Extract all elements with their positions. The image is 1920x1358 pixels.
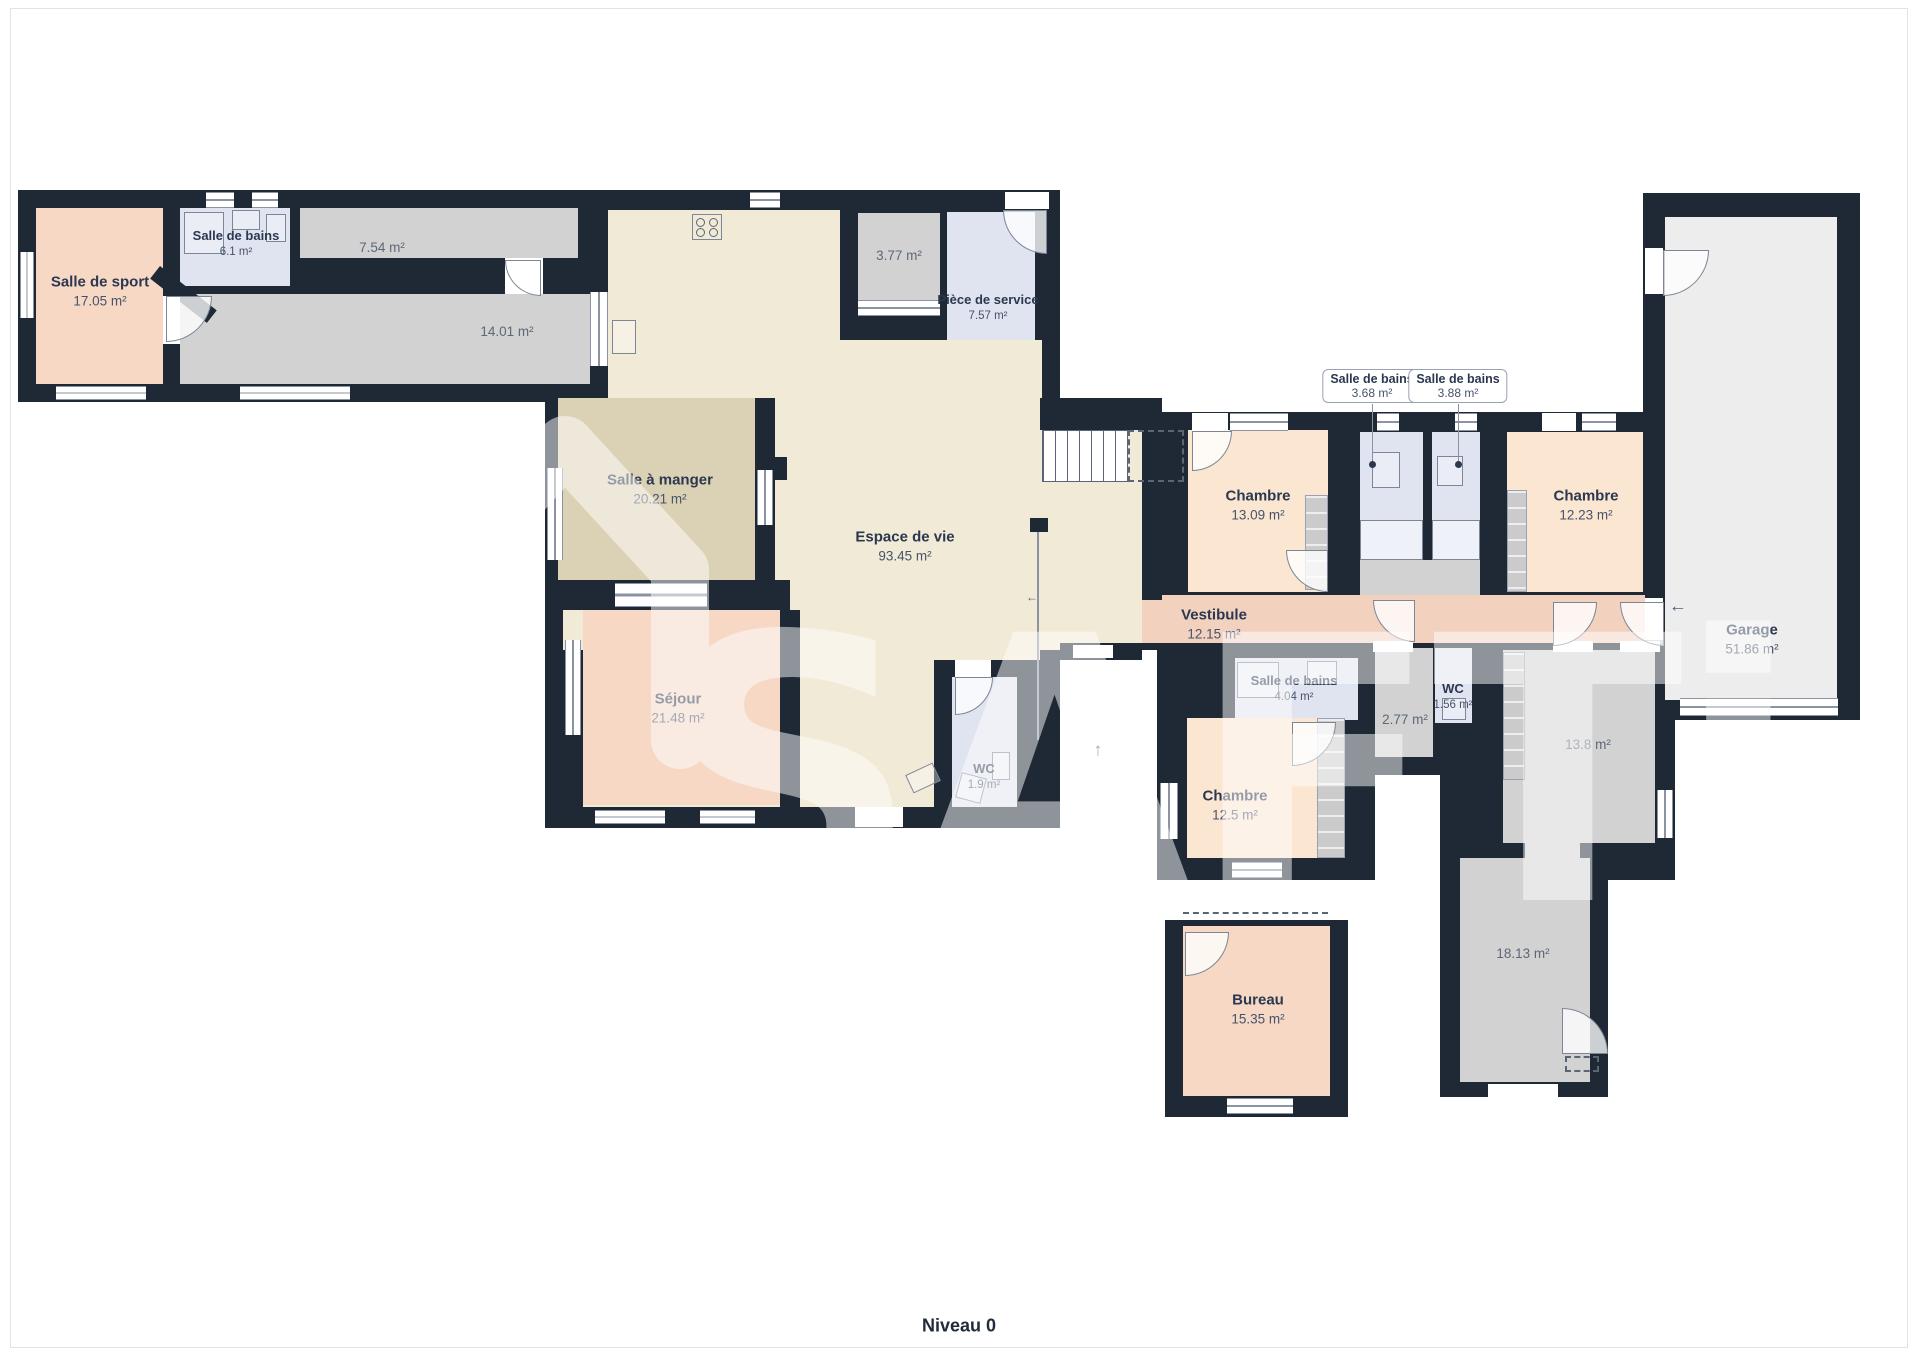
window xyxy=(56,386,146,400)
room-name: Salle de bains xyxy=(1251,673,1338,690)
room-area: 13.8 m² xyxy=(1565,736,1611,754)
room-area: 3.88 m² xyxy=(1416,386,1499,400)
room-name: WC xyxy=(1434,681,1473,698)
room-label-garage: Garage51.86 m² xyxy=(1725,620,1778,657)
room-area: 17.05 m² xyxy=(51,292,149,310)
room-name: WC xyxy=(968,761,1001,778)
room-label-piece-7-54: 7.54 m² xyxy=(359,239,405,257)
closet xyxy=(1507,490,1527,592)
room-label-salle-a-manger: Salle à manger20.21 m² xyxy=(607,470,713,507)
callout-leader xyxy=(1372,404,1373,464)
room-area: 1.56 m² xyxy=(1434,698,1473,713)
stairs xyxy=(1042,430,1128,482)
shower-icon xyxy=(1432,520,1480,560)
room-area: 2.77 m² xyxy=(1382,711,1428,729)
exterior-recess xyxy=(1375,775,1440,880)
callout-salle-de-bains-3-68: Salle de bains3.68 m² xyxy=(1322,369,1421,403)
window xyxy=(20,252,34,318)
room-label-chambre-12-23: Chambre12.23 m² xyxy=(1553,486,1618,523)
room-fill-vestibule xyxy=(1142,600,1162,643)
room-label-chambre-12-5: Chambre12.5 m² xyxy=(1202,786,1267,823)
direction-arrow-0: ↑ xyxy=(1094,740,1103,761)
room-label-piece-14-01: 14.01 m² xyxy=(480,323,533,341)
room-area: 21.48 m² xyxy=(651,709,704,727)
room-area: 12.15 m² xyxy=(1181,625,1247,643)
sink-icon xyxy=(1372,452,1400,488)
sliding-door xyxy=(615,583,707,607)
room-label-salle-de-bains-6-1: Salle de bains6.1 m² xyxy=(193,228,280,260)
door-gap xyxy=(1373,641,1413,652)
garage-door xyxy=(1680,698,1838,716)
window xyxy=(750,192,780,208)
window xyxy=(252,192,278,208)
room-label-piece-3-77: 3.77 m² xyxy=(876,247,922,265)
direction-arrow-2: ← xyxy=(1026,590,1038,604)
room-name: Séjour xyxy=(651,689,704,709)
room-name: Garage xyxy=(1725,620,1778,640)
window xyxy=(590,292,608,366)
shower-icon xyxy=(1360,520,1423,560)
room-label-sejour: Séjour21.48 m² xyxy=(651,689,704,726)
window xyxy=(547,468,563,560)
room-area: 1.9 m² xyxy=(968,778,1001,793)
room-area: 7.54 m² xyxy=(359,239,405,257)
room-fill-couloir-bains xyxy=(1360,560,1480,595)
room-area: 6.1 m² xyxy=(193,245,280,260)
room-label-salle-de-sport: Salle de sport17.05 m² xyxy=(51,272,149,309)
room-label-piece-2-77: 2.77 m² xyxy=(1382,711,1428,729)
window xyxy=(240,386,350,400)
room-fill-2-77 xyxy=(1375,648,1433,757)
doormat-dashed xyxy=(1565,1056,1599,1072)
room-label-salle-de-bains-4-04: Salle de bains4.04 m² xyxy=(1251,673,1338,705)
floorplan-canvas: Salle de sport17.05 m²Salle de bains6.1 … xyxy=(0,0,1920,1358)
room-name: Chambre xyxy=(1202,786,1267,806)
room-name: Espace de vie xyxy=(855,527,954,547)
room-name: Chambre xyxy=(1553,486,1618,506)
wall xyxy=(934,677,952,807)
room-area: 51.86 m² xyxy=(1725,640,1778,658)
door-gap xyxy=(955,660,991,677)
callout-salle-de-bains-3-88: Salle de bains3.88 m² xyxy=(1408,369,1507,403)
room-name: Bureau xyxy=(1231,990,1284,1010)
stove-icon xyxy=(692,214,722,240)
room-label-vestibule: Vestibule12.15 m² xyxy=(1181,605,1247,642)
wall xyxy=(780,610,800,807)
window xyxy=(595,810,665,824)
room-label-espace-de-vie: Espace de vie93.45 m² xyxy=(855,527,954,564)
pergola-dashed-line xyxy=(1183,912,1328,914)
room-label-piece-18-13: 18.13 m² xyxy=(1496,945,1549,963)
room-area: 3.77 m² xyxy=(876,247,922,265)
room-label-piece-de-service: Pièce de service7.57 m² xyxy=(937,292,1038,324)
window xyxy=(700,810,755,824)
door-gap xyxy=(1488,1084,1558,1098)
wall xyxy=(1142,398,1162,600)
room-name: Salle de bains xyxy=(193,228,280,245)
room-name: Pièce de service xyxy=(937,292,1038,309)
room-area: 14.01 m² xyxy=(480,323,533,341)
room-area: 18.13 m² xyxy=(1496,945,1549,963)
room-label-chambre-13-09: Chambre13.09 m² xyxy=(1225,486,1290,523)
sliding-door xyxy=(858,300,940,316)
room-area: 7.57 m² xyxy=(937,309,1038,324)
room-name: Vestibule xyxy=(1181,605,1247,625)
window xyxy=(1657,790,1673,838)
room-fill-passage xyxy=(1525,843,1580,858)
room-area: 93.45 m² xyxy=(855,547,954,565)
room-name: Salle de bains xyxy=(1416,372,1499,386)
window xyxy=(1582,413,1616,431)
direction-arrow-1: ← xyxy=(1669,596,1687,617)
door-gap xyxy=(1005,192,1049,209)
sink-icon xyxy=(232,210,260,230)
room-name: Salle de bains xyxy=(1330,372,1413,386)
room-area: 20.21 m² xyxy=(607,490,713,508)
room-name: Salle à manger xyxy=(607,470,713,490)
door-gap xyxy=(855,807,903,827)
room-label-bureau: Bureau15.35 m² xyxy=(1231,990,1284,1027)
room-area: 13.09 m² xyxy=(1225,506,1290,524)
room-area: 3.68 m² xyxy=(1330,386,1413,400)
door-gap xyxy=(1542,413,1576,431)
window xyxy=(1227,1098,1293,1114)
room-name: Chambre xyxy=(1225,486,1290,506)
stairs-dashed xyxy=(1128,430,1184,482)
window xyxy=(206,192,234,208)
floor-title: Niveau 0 xyxy=(922,1316,996,1337)
room-area: 15.35 m² xyxy=(1231,1010,1284,1028)
door-gap xyxy=(1192,413,1228,431)
room-area: 12.5 m² xyxy=(1202,806,1267,824)
room-area: 12.23 m² xyxy=(1553,506,1618,524)
window xyxy=(757,470,773,525)
callout-dot xyxy=(1455,461,1462,468)
room-label-wc-1-56: WC1.56 m² xyxy=(1434,681,1473,713)
room-fill-espace xyxy=(608,340,1042,398)
window xyxy=(1232,862,1282,878)
door-gap xyxy=(1645,248,1663,294)
callout-dot xyxy=(1369,461,1376,468)
closet xyxy=(1503,652,1525,780)
window xyxy=(1160,783,1178,839)
room-label-wc-1-9: WC1.9 m² xyxy=(968,761,1001,793)
window xyxy=(1230,413,1288,431)
window xyxy=(1377,413,1399,431)
window xyxy=(565,640,581,735)
room-area: 4.04 m² xyxy=(1251,690,1338,705)
door-gap xyxy=(1073,645,1113,658)
room-name: Salle de sport xyxy=(51,272,149,292)
room-fill-7-54 xyxy=(300,208,578,258)
column xyxy=(1030,518,1048,532)
sliding-track xyxy=(1037,532,1039,740)
callout-leader xyxy=(1458,404,1459,464)
cabinet-icon xyxy=(612,320,636,354)
room-label-piece-13-8: 13.8 m² xyxy=(1565,736,1611,754)
